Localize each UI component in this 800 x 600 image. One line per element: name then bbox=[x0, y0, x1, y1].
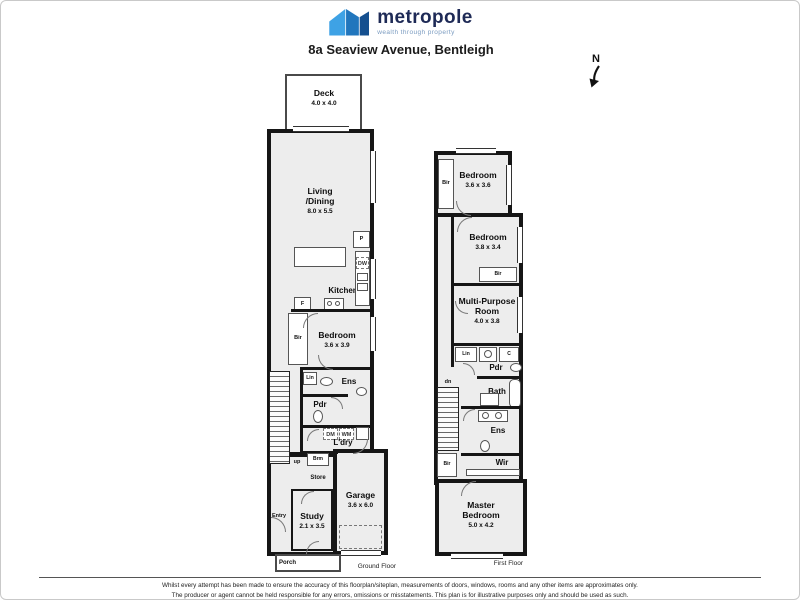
window bbox=[456, 148, 496, 154]
linen-tag-ff: Lin bbox=[456, 352, 476, 358]
bedroom-gf-dims: 3.6 x 3.9 bbox=[301, 342, 373, 349]
living-dims: 8.0 x 5.5 bbox=[281, 208, 359, 215]
study-dims: 2.1 x 3.5 bbox=[293, 523, 331, 530]
deck-name: Deck bbox=[289, 89, 359, 99]
bedroom2-name: Bedroom bbox=[449, 171, 507, 181]
study-name: Study bbox=[293, 512, 331, 522]
room-label-pdr-gf: Pdr bbox=[307, 400, 333, 409]
disclaimer-line-2: The producer or agent cannot be held res… bbox=[39, 591, 761, 600]
robe-tag-bedroom3: Bir bbox=[489, 272, 507, 278]
floor-label-ground: Ground Floor bbox=[326, 563, 396, 570]
toilet-icon bbox=[484, 350, 492, 358]
master-dims: 5.0 x 4.2 bbox=[449, 522, 513, 529]
stairs-ground-icon bbox=[269, 371, 290, 464]
window bbox=[451, 553, 503, 559]
shower-icon bbox=[480, 393, 499, 406]
basin-icon bbox=[495, 412, 502, 419]
garage-name: Garage bbox=[335, 491, 386, 501]
bedroom2-dims: 3.6 x 3.6 bbox=[449, 182, 507, 189]
room-label-ens-gf: Ens bbox=[335, 377, 363, 386]
robe-tag-bedroom2: Bir bbox=[438, 180, 454, 186]
room-label-living-dining: Living /Dining 8.0 x 5.5 bbox=[281, 187, 359, 215]
store-tag: Store bbox=[306, 475, 330, 482]
garage-door bbox=[341, 550, 381, 556]
window bbox=[370, 259, 376, 299]
address-title: 8a Seaview Avenue, Bentleigh bbox=[1, 42, 800, 57]
broom-tag: Brm bbox=[308, 457, 328, 463]
window bbox=[293, 126, 349, 132]
wall bbox=[461, 453, 523, 456]
bedroom3-name: Bedroom bbox=[456, 233, 520, 243]
north-label: N bbox=[584, 53, 608, 65]
basin-icon bbox=[510, 363, 522, 372]
floor-label-first: First Floor bbox=[463, 560, 523, 567]
room-label-bedroom3: Bedroom 3.8 x 3.4 bbox=[456, 233, 520, 251]
room-label-study: Study 2.1 x 3.5 bbox=[293, 512, 331, 530]
wardrobe-shelf-icon bbox=[466, 469, 520, 476]
wall bbox=[461, 406, 523, 409]
toilet-icon bbox=[313, 410, 323, 423]
cupboard-tag: C bbox=[500, 352, 518, 358]
stairs-first-icon bbox=[437, 387, 459, 451]
bedroom-gf-name: Bedroom bbox=[301, 331, 373, 341]
dishwasher-tag: DW bbox=[356, 257, 369, 269]
wall bbox=[303, 394, 348, 397]
toilet-icon bbox=[320, 377, 333, 386]
room-label-bedroom-gf: Bedroom 3.6 x 3.9 bbox=[301, 331, 373, 349]
robe-tag-gf: Bir bbox=[289, 335, 307, 341]
room-label-ens-ff: Ens bbox=[484, 426, 512, 435]
wall bbox=[300, 367, 374, 370]
metropole-logo: metropole wealth through property bbox=[1, 8, 800, 36]
sink-icon bbox=[357, 283, 368, 291]
basin-icon bbox=[356, 387, 367, 396]
bedroom3-dims: 3.8 x 3.4 bbox=[456, 244, 520, 251]
burner-icon bbox=[335, 301, 340, 306]
toilet-icon bbox=[480, 440, 490, 452]
disclaimer: Whilst every attempt has been made to en… bbox=[39, 577, 761, 600]
multipurpose-dims: 4.0 x 3.8 bbox=[454, 318, 520, 325]
sink-icon bbox=[357, 273, 368, 281]
basin-icon bbox=[482, 412, 489, 419]
garage-car-space bbox=[339, 525, 382, 549]
room-label-pdr-ff: Pdr bbox=[484, 363, 508, 372]
wall bbox=[291, 309, 374, 312]
robe-tag-master: Bir bbox=[438, 462, 456, 468]
window bbox=[370, 151, 376, 203]
linen-tag-gf: Lin bbox=[303, 376, 317, 382]
bathtub-icon bbox=[509, 379, 521, 408]
porch-tag: Porch bbox=[279, 560, 307, 567]
room-label-master: Master Bedroom 5.0 x 4.2 bbox=[449, 501, 513, 529]
north-arrow: N bbox=[584, 53, 608, 94]
brand-tagline: wealth through property bbox=[377, 29, 472, 36]
fridge-tag: F bbox=[295, 301, 310, 307]
brand-name: metropole bbox=[377, 8, 472, 27]
room-label-bedroom2: Bedroom 3.6 x 3.6 bbox=[449, 171, 507, 189]
wall bbox=[454, 283, 520, 286]
deck-dims: 4.0 x 4.0 bbox=[289, 100, 359, 107]
room-label-wir: Wir bbox=[489, 458, 515, 467]
living-name: Living /Dining bbox=[281, 187, 359, 207]
master-name: Master Bedroom bbox=[449, 501, 513, 521]
kitchen-island-icon bbox=[294, 247, 346, 267]
stairs-dn-tag: dn bbox=[441, 379, 455, 385]
brand-text-block: metropole wealth through property bbox=[377, 8, 472, 36]
room-label-garage: Garage 3.6 x 6.0 bbox=[335, 491, 386, 509]
pantry-tag: P bbox=[354, 236, 369, 242]
room-label-deck: Deck 4.0 x 4.0 bbox=[289, 89, 359, 107]
north-arrow-icon bbox=[586, 65, 606, 89]
disclaimer-line-1: Whilst every attempt has been made to en… bbox=[39, 581, 761, 591]
burner-icon bbox=[327, 301, 332, 306]
metropole-logo-icon bbox=[329, 9, 369, 36]
garage-dims: 3.6 x 6.0 bbox=[335, 502, 386, 509]
floorplan-page: metropole wealth through property 8a Sea… bbox=[0, 0, 800, 600]
wall bbox=[454, 343, 520, 346]
stairs-up-tag: up bbox=[291, 459, 303, 465]
